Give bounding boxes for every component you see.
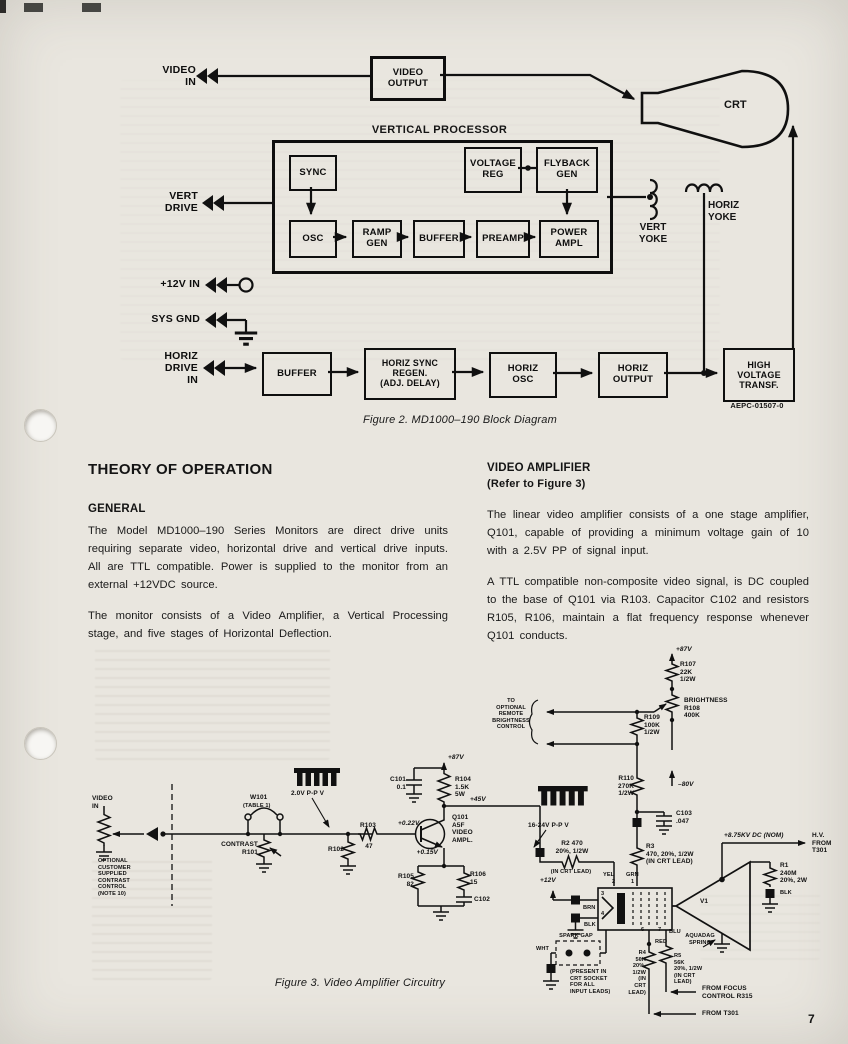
block-preamp: PREAMP <box>476 220 530 258</box>
resistor-icon <box>258 838 270 859</box>
block-buffer-v: BUFFER <box>413 220 465 258</box>
feedthrough-icon <box>571 914 580 923</box>
fig3-blk-b: BLK <box>780 890 792 897</box>
video-amplifier-heading: VIDEO AMPLIFIER <box>487 462 591 475</box>
fig3-from-focus: FROM FOCUS CONTROL R315 <box>702 985 753 1000</box>
resistor-icon <box>98 812 110 846</box>
vert-yoke-label: VERT YOKE <box>630 222 676 245</box>
video-amplifier-paragraph-1: The linear video amplifier consists of a… <box>487 506 809 560</box>
fig3-hv-value: +8.75KV DC (NOM) <box>724 832 784 840</box>
io-label-horiz-drive: HORIZ DRIVE IN <box>150 350 198 386</box>
fig3-c103: C103 .047 <box>676 810 692 825</box>
block-ramp-gen: RAMP GEN <box>352 220 402 258</box>
feedthrough-icon <box>766 889 775 898</box>
fig3-r110: R110 270K 1/2W <box>606 775 634 798</box>
input-connector-icon <box>202 195 224 211</box>
block-voltage-reg: VOLTAGE REG <box>464 147 522 193</box>
fig3-v1: V1 <box>700 898 708 906</box>
fig3-hv-from: H.V. FROM T301 <box>812 832 832 855</box>
fig3-from-t301: FROM T301 <box>702 1010 739 1018</box>
fig3-w101: W101 <box>250 794 267 802</box>
fig3-r4: R4 56K 20%, 1/2W (IN CRT LEAD) <box>620 950 646 996</box>
feedthrough-icon <box>633 818 642 827</box>
fig3-contrast-r101: CONTRAST R101 <box>200 841 258 856</box>
ground-icon <box>256 864 272 872</box>
block-horiz-osc: HORIZ OSC <box>489 352 557 398</box>
video-amplifier-paragraph-2: A TTL compatible non-composite video sig… <box>487 573 809 646</box>
resistor-icon <box>666 662 678 683</box>
fig3-wht: WHT <box>536 946 549 953</box>
general-paragraph-1: The Model MD1000–190 Series Monitors are… <box>88 522 448 595</box>
part-number: AEPC-01507-0 <box>714 401 800 410</box>
ground-icon <box>762 904 778 912</box>
fig3-c102: C102 <box>474 896 490 904</box>
input-connector-icon <box>203 360 225 376</box>
waveform-icon <box>294 768 340 786</box>
fig3-wave-2v: 2.0V P-P V <box>291 790 324 798</box>
ground-icon <box>340 866 356 874</box>
fig3-r2-note: (IN CRT LEAD) <box>546 869 596 876</box>
block-horiz-output: HORIZ OUTPUT <box>598 352 668 398</box>
io-label-vert-drive: VERT DRIVE <box>146 190 198 214</box>
block-hv-transf: HIGH VOLTAGE TRANSF. <box>723 348 795 402</box>
fig3-r103-value: 47 <box>361 843 377 851</box>
fig3-blk-a: BLK <box>584 922 596 929</box>
connector-arrow-icon <box>146 827 158 841</box>
fig3-pin7: 7 <box>658 927 661 934</box>
feedthrough-icon <box>536 848 545 857</box>
resistor-icon <box>438 771 450 805</box>
fig3-yel: YEL <box>603 872 614 879</box>
crt-socket <box>598 888 672 930</box>
fig3-r103: R103 <box>357 822 379 830</box>
fig3-remote-brightness: TO OPTIONAL REMOTE BRIGHTNESS CONTROL <box>488 698 534 731</box>
fig3-v022: +0.22V <box>398 820 419 828</box>
video-amplifier-subheading: (Refer to Figure 3) <box>487 478 586 490</box>
input-connector-icon <box>205 277 227 293</box>
fig3-pin3: 3 <box>601 891 604 898</box>
fig3-brightness-r108: BRIGHTNESS R108 400K <box>684 697 728 720</box>
block-sync: SYNC <box>289 155 337 191</box>
crt-electrodes <box>633 892 665 926</box>
page-number: 7 <box>808 1012 815 1026</box>
fig3-r2: R2 470 20%, 1/2W <box>550 840 594 855</box>
fig3-optional-contrast-note: OPTIONAL CUSTOMER SUPPLIED CONTRAST CONT… <box>98 858 131 898</box>
ground-icon <box>543 981 559 989</box>
fig3-aquadag: AQUADAG SPRING <box>678 933 722 946</box>
transistor-icon <box>416 820 445 849</box>
resistor-icon <box>631 716 643 737</box>
fig3-r102: R102 <box>318 846 344 854</box>
fig3-pin6: 6 <box>641 927 644 934</box>
fig3-r107: R107 22K 1/2W <box>680 661 696 684</box>
block-osc: OSC <box>289 220 337 258</box>
fig3-r106: R106 15 <box>470 871 486 886</box>
block-crt-label: CRT <box>724 99 772 111</box>
fig3-v45: +45V <box>470 796 486 804</box>
ground-icon <box>406 794 422 802</box>
resistor-icon <box>764 866 776 887</box>
fig3-r1: R1 240M 20%, 2W <box>780 862 807 885</box>
general-heading: GENERAL <box>88 503 146 516</box>
terminal-circle-icon <box>240 279 253 292</box>
io-label-video-in: VIDEO IN <box>144 64 196 88</box>
vertical-processor-title: VERTICAL PROCESSOR <box>272 124 607 136</box>
resistor-icon <box>560 856 581 868</box>
fig3-87v-a: +87V <box>448 754 464 762</box>
fig3-c101: C101 0.1 <box>380 776 406 791</box>
io-label-12v: +12V IN <box>136 278 200 290</box>
fig3-r3: R3 470, 20%, 1/2W (IN CRT LEAD) <box>646 843 694 866</box>
ground-icon <box>656 826 672 834</box>
spark-gap-box <box>556 941 600 965</box>
resistor-icon <box>660 944 672 965</box>
fig3-minus80v: –80V <box>678 781 694 789</box>
fig3-spark-note: (PRESENT IN CRT SOCKET FOR ALL INPUT LEA… <box>570 969 610 995</box>
ground-icon <box>433 912 449 920</box>
fig3-r109: R109 100K 1/2W <box>644 714 660 737</box>
resistor-icon <box>458 871 470 892</box>
ground-icon <box>235 333 257 344</box>
fig3-brn: BRN <box>583 905 595 912</box>
block-video-output: VIDEO OUTPUT <box>370 56 446 101</box>
general-paragraph-2: The monitor consists of a Video Amplifie… <box>88 607 448 643</box>
feedthrough-icon <box>547 964 556 973</box>
fig3-video-in: VIDEO IN <box>92 795 113 810</box>
feedthrough-icon <box>571 896 580 905</box>
fig3-spark-gap: SPARK GAP <box>550 933 602 940</box>
input-connector-icon <box>205 312 227 328</box>
fig3-grn: GRN <box>626 872 639 879</box>
section-heading: THEORY OF OPERATION <box>88 462 273 479</box>
fig3-w101-table: (TABLE 1) <box>243 803 271 810</box>
fig3-v015: +0.15V <box>398 849 438 857</box>
fig3-pin4: 4 <box>601 911 604 918</box>
io-label-sys-gnd: SYS GND <box>136 313 200 325</box>
fig3-12v: +12V <box>540 877 556 885</box>
waveform-icon <box>538 786 588 805</box>
fig3-q101: Q101 A5F VIDEO AMPL. <box>452 814 473 845</box>
fig3-pin2: 2 <box>612 879 615 886</box>
block-flyback-gen: FLYBACK GEN <box>536 147 598 193</box>
fig3-r5: R5 56K 20%, 1/2W (IN CRT LEAD) <box>674 953 702 986</box>
fig3-pin1: 1 <box>631 879 634 886</box>
figure3-caption: Figure 3. Video Amplifier Circuitry <box>235 977 485 990</box>
figure2-caption: Figure 2. MD1000–190 Block Diagram <box>320 414 600 427</box>
fig3-red: RED <box>655 939 667 946</box>
resistor-icon <box>631 846 643 867</box>
fig3-87v-b: +87V <box>676 646 692 654</box>
input-connector-icon <box>196 68 218 84</box>
block-buffer-h: BUFFER <box>262 352 332 396</box>
block-horiz-sync-regen: HORIZ SYNC REGEN. (ADJ. DELAY) <box>364 348 456 400</box>
horiz-yoke-label: HORIZ YOKE <box>708 200 758 223</box>
fig3-wave-16-24v: 16-24V P-P V <box>528 822 569 830</box>
fig3-r104: R104 1.5K 5W <box>455 776 471 799</box>
horiz-yoke-coil-icon <box>686 185 722 193</box>
block-power-ampl: POWER AMPL <box>539 220 599 258</box>
crt-base-key <box>617 893 625 924</box>
manual-page: VIDEO IN VIDEO OUTPUT CRT VERTICAL PROCE… <box>0 0 848 1044</box>
fig3-r105: R105 82 <box>392 873 414 888</box>
resistor-icon <box>666 693 678 714</box>
